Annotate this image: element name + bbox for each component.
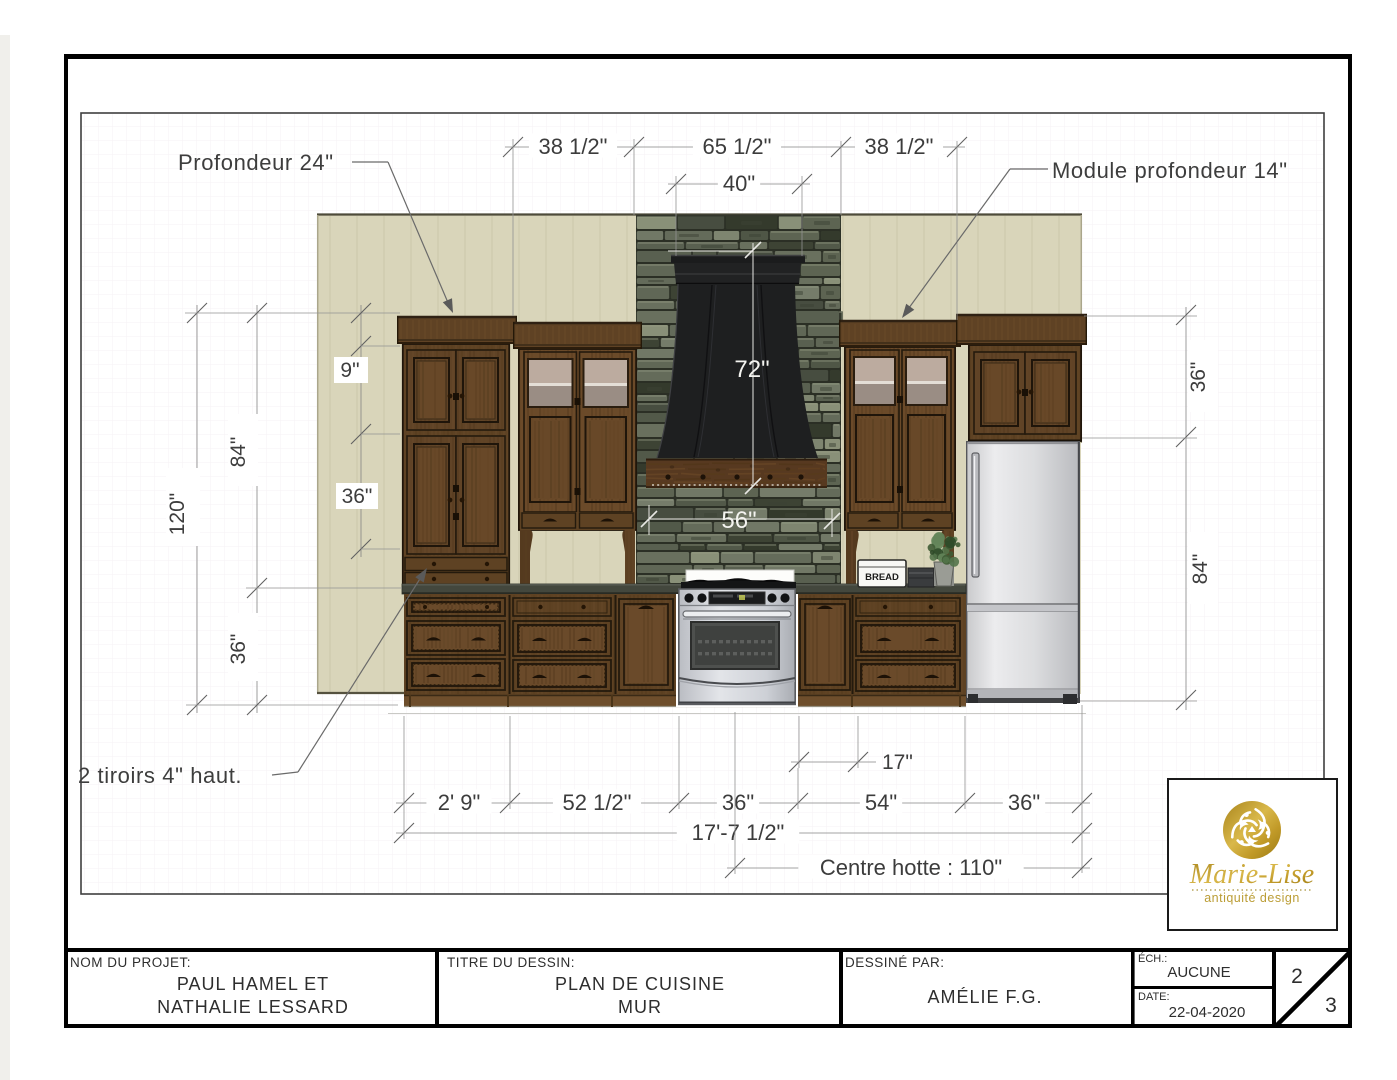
- svg-text:22-04-2020: 22-04-2020: [1169, 1004, 1246, 1021]
- svg-text:36": 36": [1187, 362, 1210, 393]
- svg-text:antiquité design: antiquité design: [1204, 891, 1300, 905]
- svg-text:56": 56": [721, 507, 756, 534]
- svg-text:65 1/2": 65 1/2": [703, 134, 772, 159]
- svg-text:ÉCH.:: ÉCH.:: [1138, 952, 1167, 965]
- svg-text:36": 36": [342, 485, 373, 508]
- svg-text:Module profondeur 14": Module profondeur 14": [1052, 158, 1288, 183]
- svg-text:Centre hotte : 110": Centre hotte : 110": [820, 855, 1002, 880]
- svg-text:BREAD: BREAD: [865, 572, 899, 583]
- svg-text:84": 84": [1189, 554, 1212, 585]
- svg-text:17": 17": [882, 751, 913, 774]
- svg-text:NATHALIE LESSARD: NATHALIE LESSARD: [157, 997, 349, 1017]
- svg-text:PAUL HAMEL ET: PAUL HAMEL ET: [177, 974, 329, 994]
- svg-text:Marie-Lise: Marie-Lise: [1189, 859, 1314, 890]
- svg-text:38 1/2": 38 1/2": [539, 134, 608, 159]
- svg-text:54": 54": [865, 790, 897, 815]
- svg-text:40": 40": [723, 171, 755, 196]
- svg-text:2: 2: [1291, 965, 1303, 988]
- svg-text:3: 3: [1325, 994, 1337, 1017]
- svg-text:52 1/2": 52 1/2": [563, 790, 632, 815]
- svg-text:17'-7 1/2": 17'-7 1/2": [692, 820, 785, 845]
- svg-text:38 1/2": 38 1/2": [865, 134, 934, 159]
- svg-text:MUR: MUR: [618, 997, 662, 1017]
- svg-text:36": 36": [722, 790, 754, 815]
- svg-text:84": 84": [227, 437, 250, 468]
- svg-text:72": 72": [734, 356, 769, 383]
- svg-text:120": 120": [166, 493, 189, 536]
- svg-text:NOM DU PROJET:: NOM DU PROJET:: [70, 955, 191, 970]
- svg-text:36": 36": [1008, 790, 1040, 815]
- svg-text:2 tiroirs 4" haut.: 2 tiroirs 4" haut.: [78, 763, 242, 788]
- svg-text:AMÉLIE F.G.: AMÉLIE F.G.: [927, 987, 1042, 1007]
- svg-text:TITRE DU DESSIN:: TITRE DU DESSIN:: [447, 955, 575, 970]
- svg-text:36": 36": [227, 634, 250, 665]
- svg-text:DATE:: DATE:: [1138, 991, 1170, 1003]
- svg-text:PLAN DE CUISINE: PLAN DE CUISINE: [555, 974, 725, 994]
- svg-text:9": 9": [340, 359, 359, 382]
- svg-text:DESSINÉ PAR:: DESSINÉ PAR:: [845, 955, 945, 970]
- svg-text:Profondeur 24": Profondeur 24": [178, 150, 334, 175]
- svg-text:AUCUNE: AUCUNE: [1167, 964, 1230, 981]
- svg-text:2' 9": 2' 9": [438, 790, 481, 815]
